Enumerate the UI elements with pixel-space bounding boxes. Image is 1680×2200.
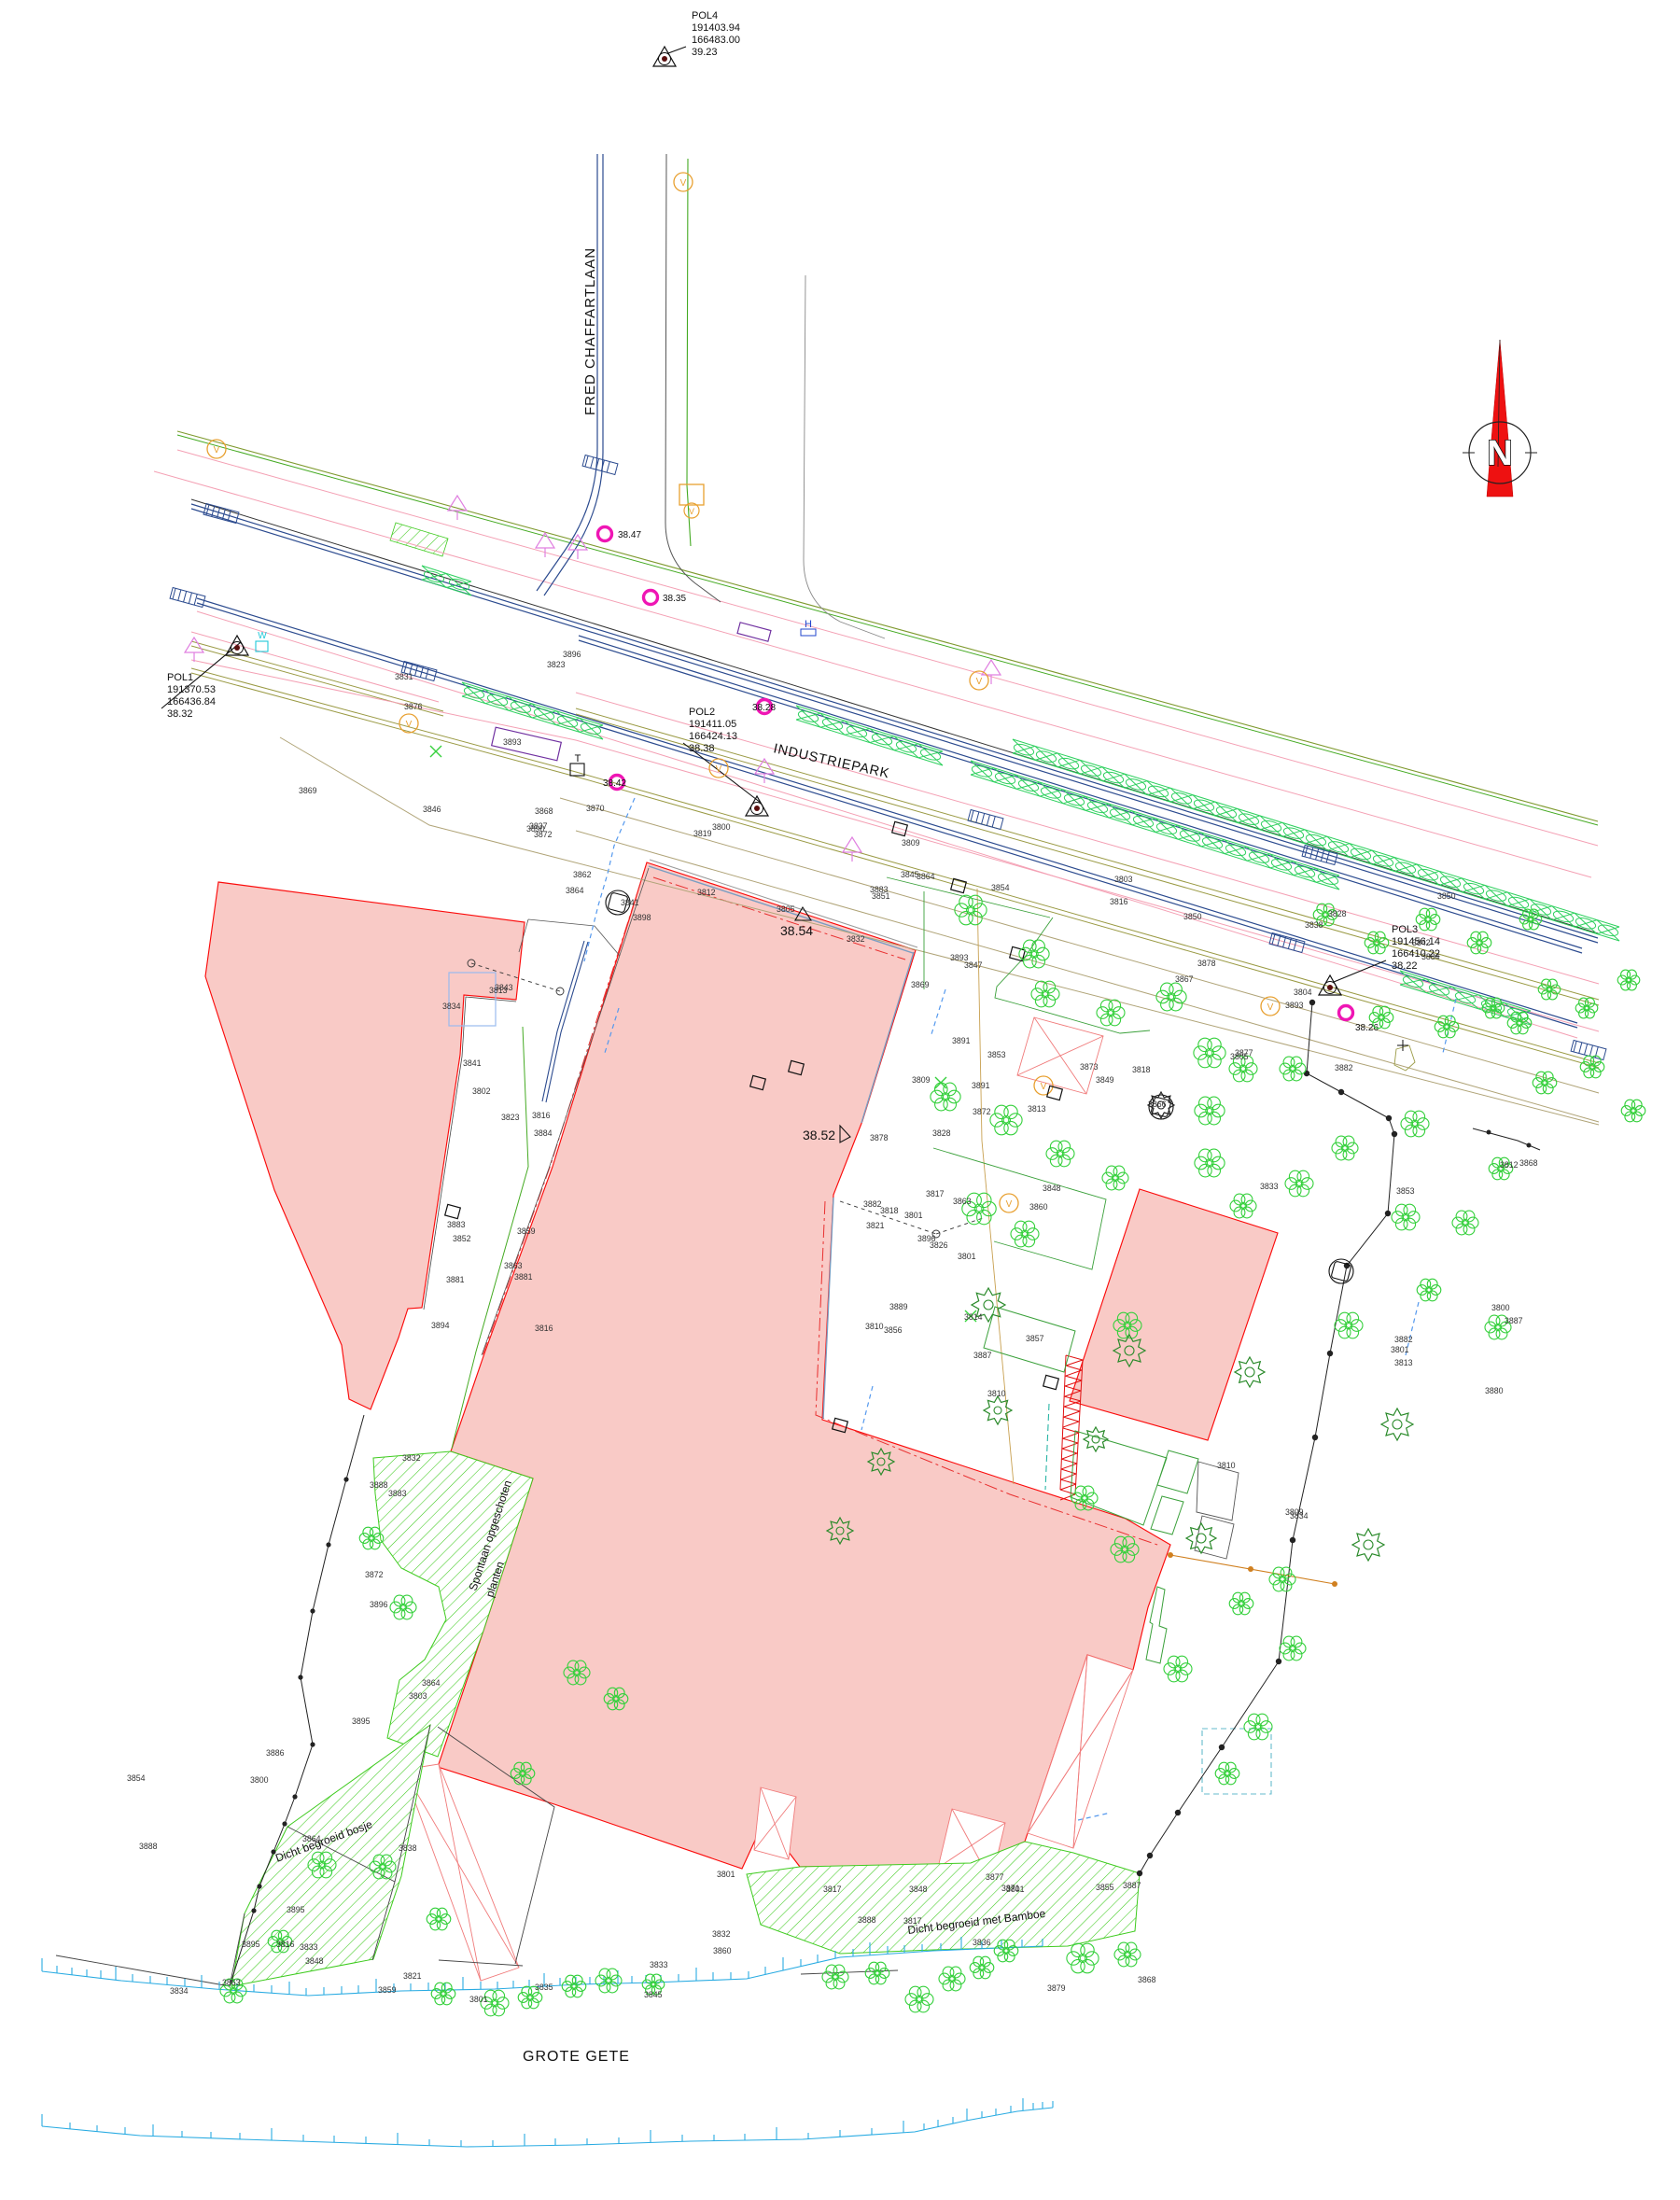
svg-text:3884: 3884 (1421, 952, 1440, 961)
svg-text:3876: 3876 (404, 702, 423, 711)
svg-text:3848: 3848 (1043, 1184, 1061, 1193)
svg-text:3831: 3831 (395, 672, 413, 681)
svg-text:V: V (716, 764, 722, 775)
svg-text:3800: 3800 (250, 1775, 269, 1785)
svg-text:3810: 3810 (987, 1389, 1006, 1398)
svg-text:3880: 3880 (1485, 1386, 1504, 1395)
svg-text:3834: 3834 (442, 1002, 461, 1011)
svg-text:3833: 3833 (1260, 1182, 1279, 1191)
svg-text:3855: 3855 (1096, 1883, 1114, 1892)
svg-text:3818: 3818 (1132, 1065, 1151, 1074)
svg-text:3881: 3881 (514, 1272, 533, 1282)
svg-text:3841: 3841 (463, 1058, 482, 1068)
svg-text:3864: 3864 (917, 872, 935, 881)
svg-text:3817: 3817 (903, 1916, 922, 1926)
svg-text:3860: 3860 (713, 1946, 732, 1955)
svg-text:3879: 3879 (1047, 1983, 1066, 1993)
svg-text:3857: 3857 (1026, 1334, 1044, 1343)
svg-text:3828: 3828 (1328, 909, 1347, 918)
svg-text:3800: 3800 (712, 822, 731, 832)
svg-text:3816: 3816 (276, 1940, 295, 1949)
svg-text:3862: 3862 (573, 870, 592, 879)
svg-text:3818: 3818 (880, 1206, 899, 1215)
svg-text:3882: 3882 (863, 1199, 882, 1209)
svg-text:3809: 3809 (912, 1075, 931, 1085)
svg-text:3832: 3832 (402, 1453, 421, 1463)
svg-text:3804: 3804 (1294, 988, 1312, 997)
svg-text:3801: 3801 (958, 1252, 976, 1261)
svg-text:3883: 3883 (447, 1220, 466, 1229)
svg-text:3893: 3893 (1285, 1001, 1304, 1010)
svg-text:3868: 3868 (535, 806, 553, 816)
svg-text:38.47: 38.47 (618, 530, 641, 540)
svg-text:3884: 3884 (534, 1128, 553, 1138)
svg-text:3801: 3801 (1391, 1345, 1409, 1354)
svg-text:3845: 3845 (644, 1990, 663, 1999)
svg-text:3851: 3851 (872, 891, 890, 901)
svg-text:FRED CHAFFARTLAAN: FRED CHAFFARTLAAN (582, 247, 598, 415)
svg-text:V: V (1041, 1082, 1047, 1092)
svg-text:3813: 3813 (1028, 1104, 1046, 1114)
svg-text:3864: 3864 (422, 1678, 441, 1688)
svg-text:V: V (1006, 1199, 1013, 1210)
svg-text:3816: 3816 (1110, 897, 1128, 906)
svg-text:3898: 3898 (633, 913, 651, 922)
svg-text:3849: 3849 (1096, 1075, 1114, 1085)
svg-text:3889: 3889 (889, 1302, 908, 1311)
svg-text:3800: 3800 (1491, 1303, 1510, 1312)
svg-text:3828: 3828 (932, 1128, 951, 1138)
svg-text:3869: 3869 (911, 980, 930, 989)
svg-text:3872: 3872 (534, 830, 553, 839)
svg-text:3832: 3832 (712, 1929, 731, 1939)
svg-text:3872: 3872 (365, 1570, 384, 1579)
svg-text:3859: 3859 (378, 1985, 397, 1995)
svg-text:T: T (575, 753, 581, 764)
svg-text:3894: 3894 (431, 1321, 450, 1330)
svg-text:3882: 3882 (1394, 1335, 1413, 1344)
svg-text:3878: 3878 (870, 1133, 889, 1142)
svg-text:V: V (214, 445, 220, 455)
svg-text:3834: 3834 (170, 1986, 189, 1996)
svg-text:3866: 3866 (1148, 1100, 1167, 1109)
svg-text:3826: 3826 (930, 1240, 948, 1250)
svg-text:3852: 3852 (453, 1234, 471, 1243)
svg-text:3854: 3854 (991, 883, 1010, 892)
svg-text:3868: 3868 (1138, 1975, 1156, 1984)
svg-text:3893: 3893 (503, 737, 522, 747)
svg-text:3853: 3853 (987, 1050, 1006, 1059)
svg-text:3817: 3817 (823, 1885, 842, 1894)
svg-text:V: V (406, 720, 413, 730)
svg-text:3817: 3817 (926, 1189, 945, 1198)
svg-text:3835: 3835 (535, 1983, 553, 1992)
svg-text:3869: 3869 (299, 786, 317, 795)
svg-text:3864: 3864 (566, 886, 584, 895)
svg-text:38.54: 38.54 (780, 923, 813, 938)
svg-text:3881: 3881 (446, 1275, 465, 1284)
svg-text:3813: 3813 (489, 986, 508, 995)
svg-text:3896: 3896 (563, 650, 581, 659)
svg-text:3886: 3886 (266, 1748, 285, 1758)
svg-text:3805: 3805 (777, 904, 795, 914)
svg-text:3877: 3877 (1235, 1048, 1253, 1058)
svg-text:W: W (258, 631, 267, 641)
svg-text:3863: 3863 (953, 1197, 972, 1206)
svg-text:3888: 3888 (370, 1480, 388, 1490)
svg-text:3850: 3850 (1183, 912, 1202, 921)
svg-text:3883: 3883 (388, 1489, 407, 1498)
svg-text:V: V (976, 677, 983, 687)
svg-text:3850: 3850 (1437, 891, 1456, 901)
svg-text:3838: 3838 (399, 1843, 417, 1853)
svg-text:V: V (689, 507, 694, 516)
svg-text:H: H (805, 619, 812, 630)
svg-text:3812: 3812 (697, 888, 716, 897)
svg-text:3845: 3845 (901, 870, 919, 879)
svg-text:3847: 3847 (964, 960, 983, 970)
svg-text:3823: 3823 (501, 1113, 520, 1122)
svg-text:3887: 3887 (973, 1351, 992, 1360)
svg-text:3819: 3819 (693, 829, 712, 838)
svg-text:3848: 3848 (305, 1956, 324, 1966)
svg-text:V: V (1267, 1002, 1274, 1013)
svg-text:3870: 3870 (586, 804, 605, 813)
svg-text:3887: 3887 (1123, 1881, 1141, 1890)
svg-text:3813: 3813 (1394, 1358, 1413, 1367)
svg-text:3832: 3832 (847, 934, 865, 944)
svg-text:3888: 3888 (139, 1842, 158, 1851)
svg-text:GROTE GETE: GROTE GETE (523, 2049, 630, 2065)
svg-text:3810: 3810 (865, 1322, 884, 1331)
svg-text:3809: 3809 (902, 838, 920, 848)
svg-text:3896: 3896 (370, 1600, 388, 1609)
svg-text:3841: 3841 (621, 898, 639, 907)
svg-text:3848: 3848 (909, 1885, 928, 1894)
svg-text:3836: 3836 (973, 1938, 991, 1947)
svg-text:38.35: 38.35 (663, 594, 686, 604)
svg-text:3803: 3803 (409, 1691, 427, 1701)
svg-text:3838: 3838 (1305, 920, 1323, 930)
svg-text:3812: 3812 (1500, 1160, 1519, 1170)
svg-text:3803: 3803 (1114, 875, 1133, 884)
svg-text:3833: 3833 (650, 1960, 668, 1969)
svg-text:3859: 3859 (517, 1226, 536, 1236)
svg-text:3877: 3877 (986, 1872, 1004, 1882)
svg-text:V: V (680, 178, 687, 189)
svg-text:3814: 3814 (964, 1312, 983, 1322)
svg-text:3816: 3816 (535, 1324, 553, 1333)
svg-text:3860: 3860 (1029, 1202, 1048, 1212)
svg-text:3871: 3871 (1001, 1884, 1020, 1893)
svg-text:3895: 3895 (287, 1905, 305, 1914)
svg-text:N: N (1487, 434, 1512, 473)
svg-text:3802: 3802 (472, 1086, 491, 1096)
svg-text:3864: 3864 (302, 1834, 321, 1843)
svg-text:3868: 3868 (1519, 1158, 1538, 1168)
svg-text:3816: 3816 (532, 1111, 551, 1120)
svg-text:3853: 3853 (1396, 1186, 1415, 1196)
svg-text:3846: 3846 (423, 805, 441, 814)
svg-text:3823: 3823 (547, 660, 566, 669)
svg-text:3891: 3891 (972, 1081, 990, 1090)
svg-text:3842: 3842 (1412, 938, 1431, 947)
svg-text:3863: 3863 (504, 1261, 523, 1270)
svg-text:3873: 3873 (1080, 1062, 1099, 1072)
svg-text:3801: 3801 (469, 1995, 488, 2004)
svg-text:3837: 3837 (529, 821, 548, 831)
svg-text:3878: 3878 (1197, 959, 1216, 968)
svg-text:3891: 3891 (952, 1036, 971, 1045)
svg-text:38.28: 38.28 (752, 703, 776, 713)
svg-text:3867: 3867 (1175, 974, 1194, 984)
svg-text:38.42: 38.42 (603, 778, 626, 789)
svg-text:3882: 3882 (1335, 1063, 1353, 1072)
svg-text:3821: 3821 (403, 1971, 422, 1981)
svg-text:3888: 3888 (858, 1915, 876, 1925)
svg-text:3821: 3821 (866, 1221, 885, 1230)
svg-text:3801: 3801 (904, 1211, 923, 1220)
svg-text:3887: 3887 (1505, 1316, 1523, 1325)
svg-text:38.52: 38.52 (803, 1128, 835, 1142)
svg-text:3801: 3801 (717, 1870, 735, 1879)
svg-text:3810: 3810 (1217, 1461, 1236, 1470)
svg-text:3895: 3895 (242, 1940, 260, 1949)
svg-text:3863: 3863 (222, 1978, 241, 1987)
svg-text:3872: 3872 (973, 1107, 991, 1116)
svg-text:3895: 3895 (352, 1717, 371, 1726)
svg-text:3833: 3833 (300, 1942, 318, 1952)
svg-text:3856: 3856 (884, 1325, 903, 1335)
svg-text:3834: 3834 (1290, 1511, 1309, 1520)
svg-text:3854: 3854 (127, 1773, 146, 1783)
